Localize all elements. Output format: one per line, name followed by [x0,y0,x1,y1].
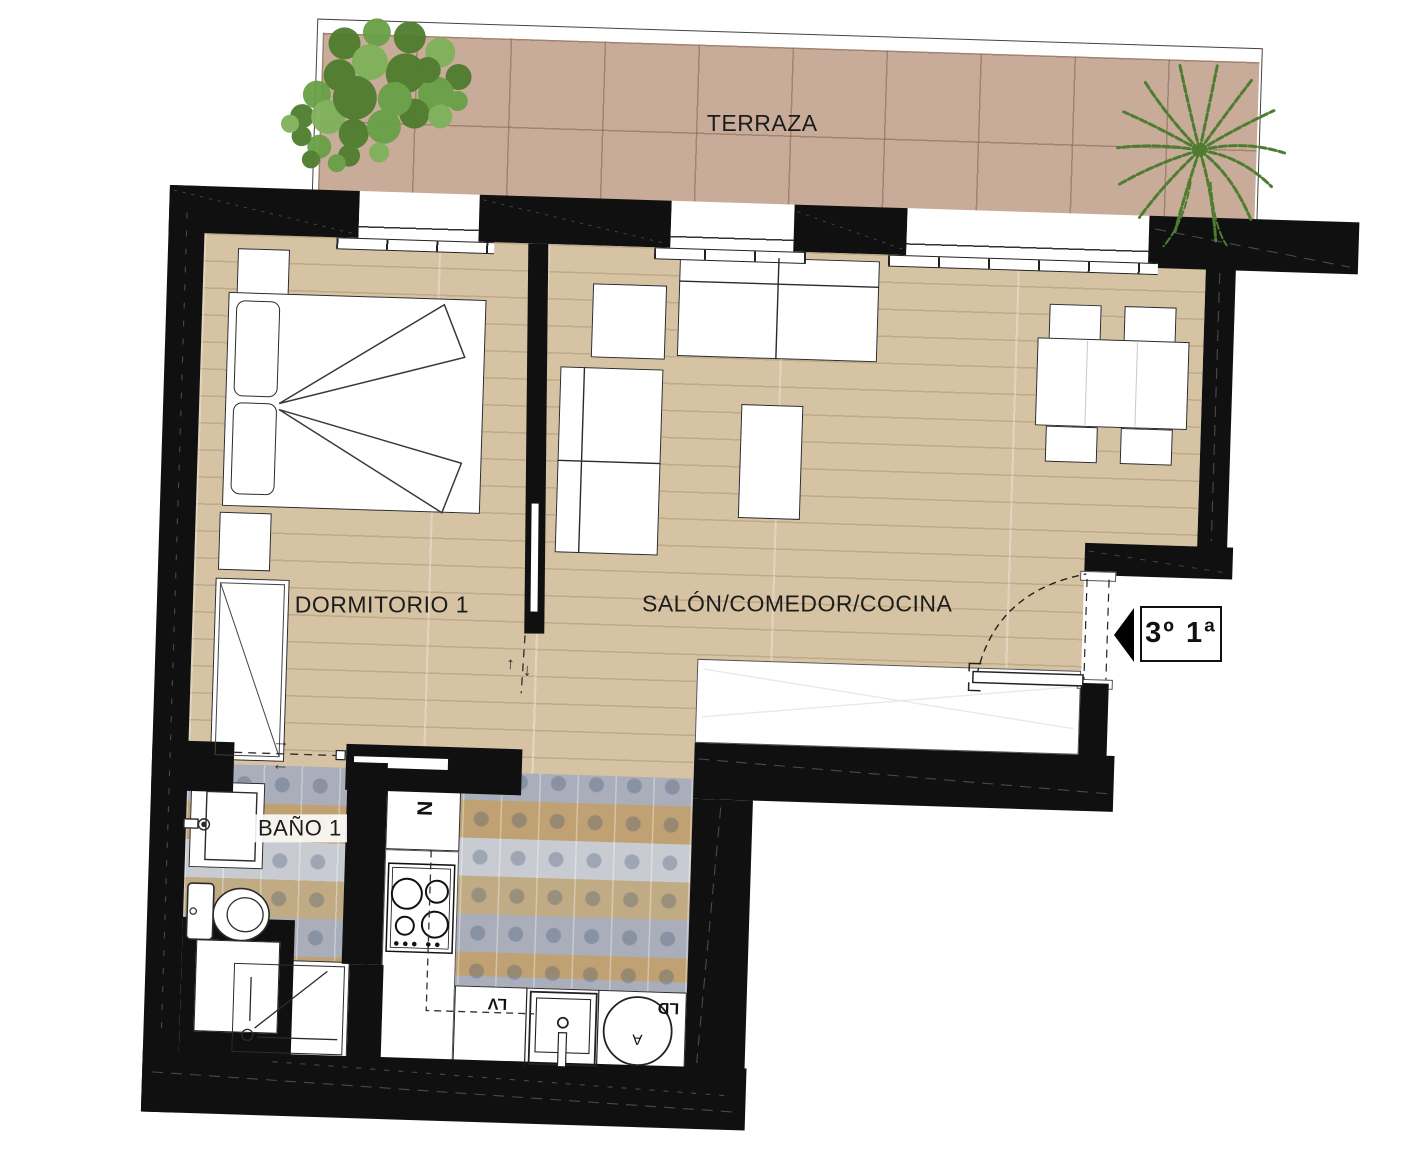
fridge-label: N [411,800,435,816]
bathroom-label: BAÑO 1 [253,814,347,842]
living-room-label: SALÓN/COMEDOR/COCINA [642,590,952,617]
terrace-label: TERRAZA [707,110,818,137]
entrance-arrow-icon [1114,608,1134,662]
plants-overlay [0,0,1420,1162]
floor-plan-canvas: N LV LD A → ← ↑ ↓ TERRAZA DORMITORIO 1 S… [0,0,1420,1162]
palm-plant [1115,61,1288,250]
slide-arrow-down-icon: ↓ [523,661,532,678]
bedroom-label: DORMITORIO 1 [295,591,469,618]
slide-arrow-left-icon: ← [272,755,290,773]
washer-label: LD [657,998,679,1017]
slide-arrow-right-icon: → [272,733,290,751]
slide-arrow-up-icon: ↑ [506,655,515,672]
washer-drum-label: A [632,1030,643,1047]
dishwasher-label: LV [488,993,508,1012]
unit-badge: 3º 1ª [1140,606,1222,662]
bush-plant [280,16,474,177]
floor-plan: N LV LD A → ← ↑ ↓ TERRAZA DORMITORIO 1 S… [0,0,1420,1162]
